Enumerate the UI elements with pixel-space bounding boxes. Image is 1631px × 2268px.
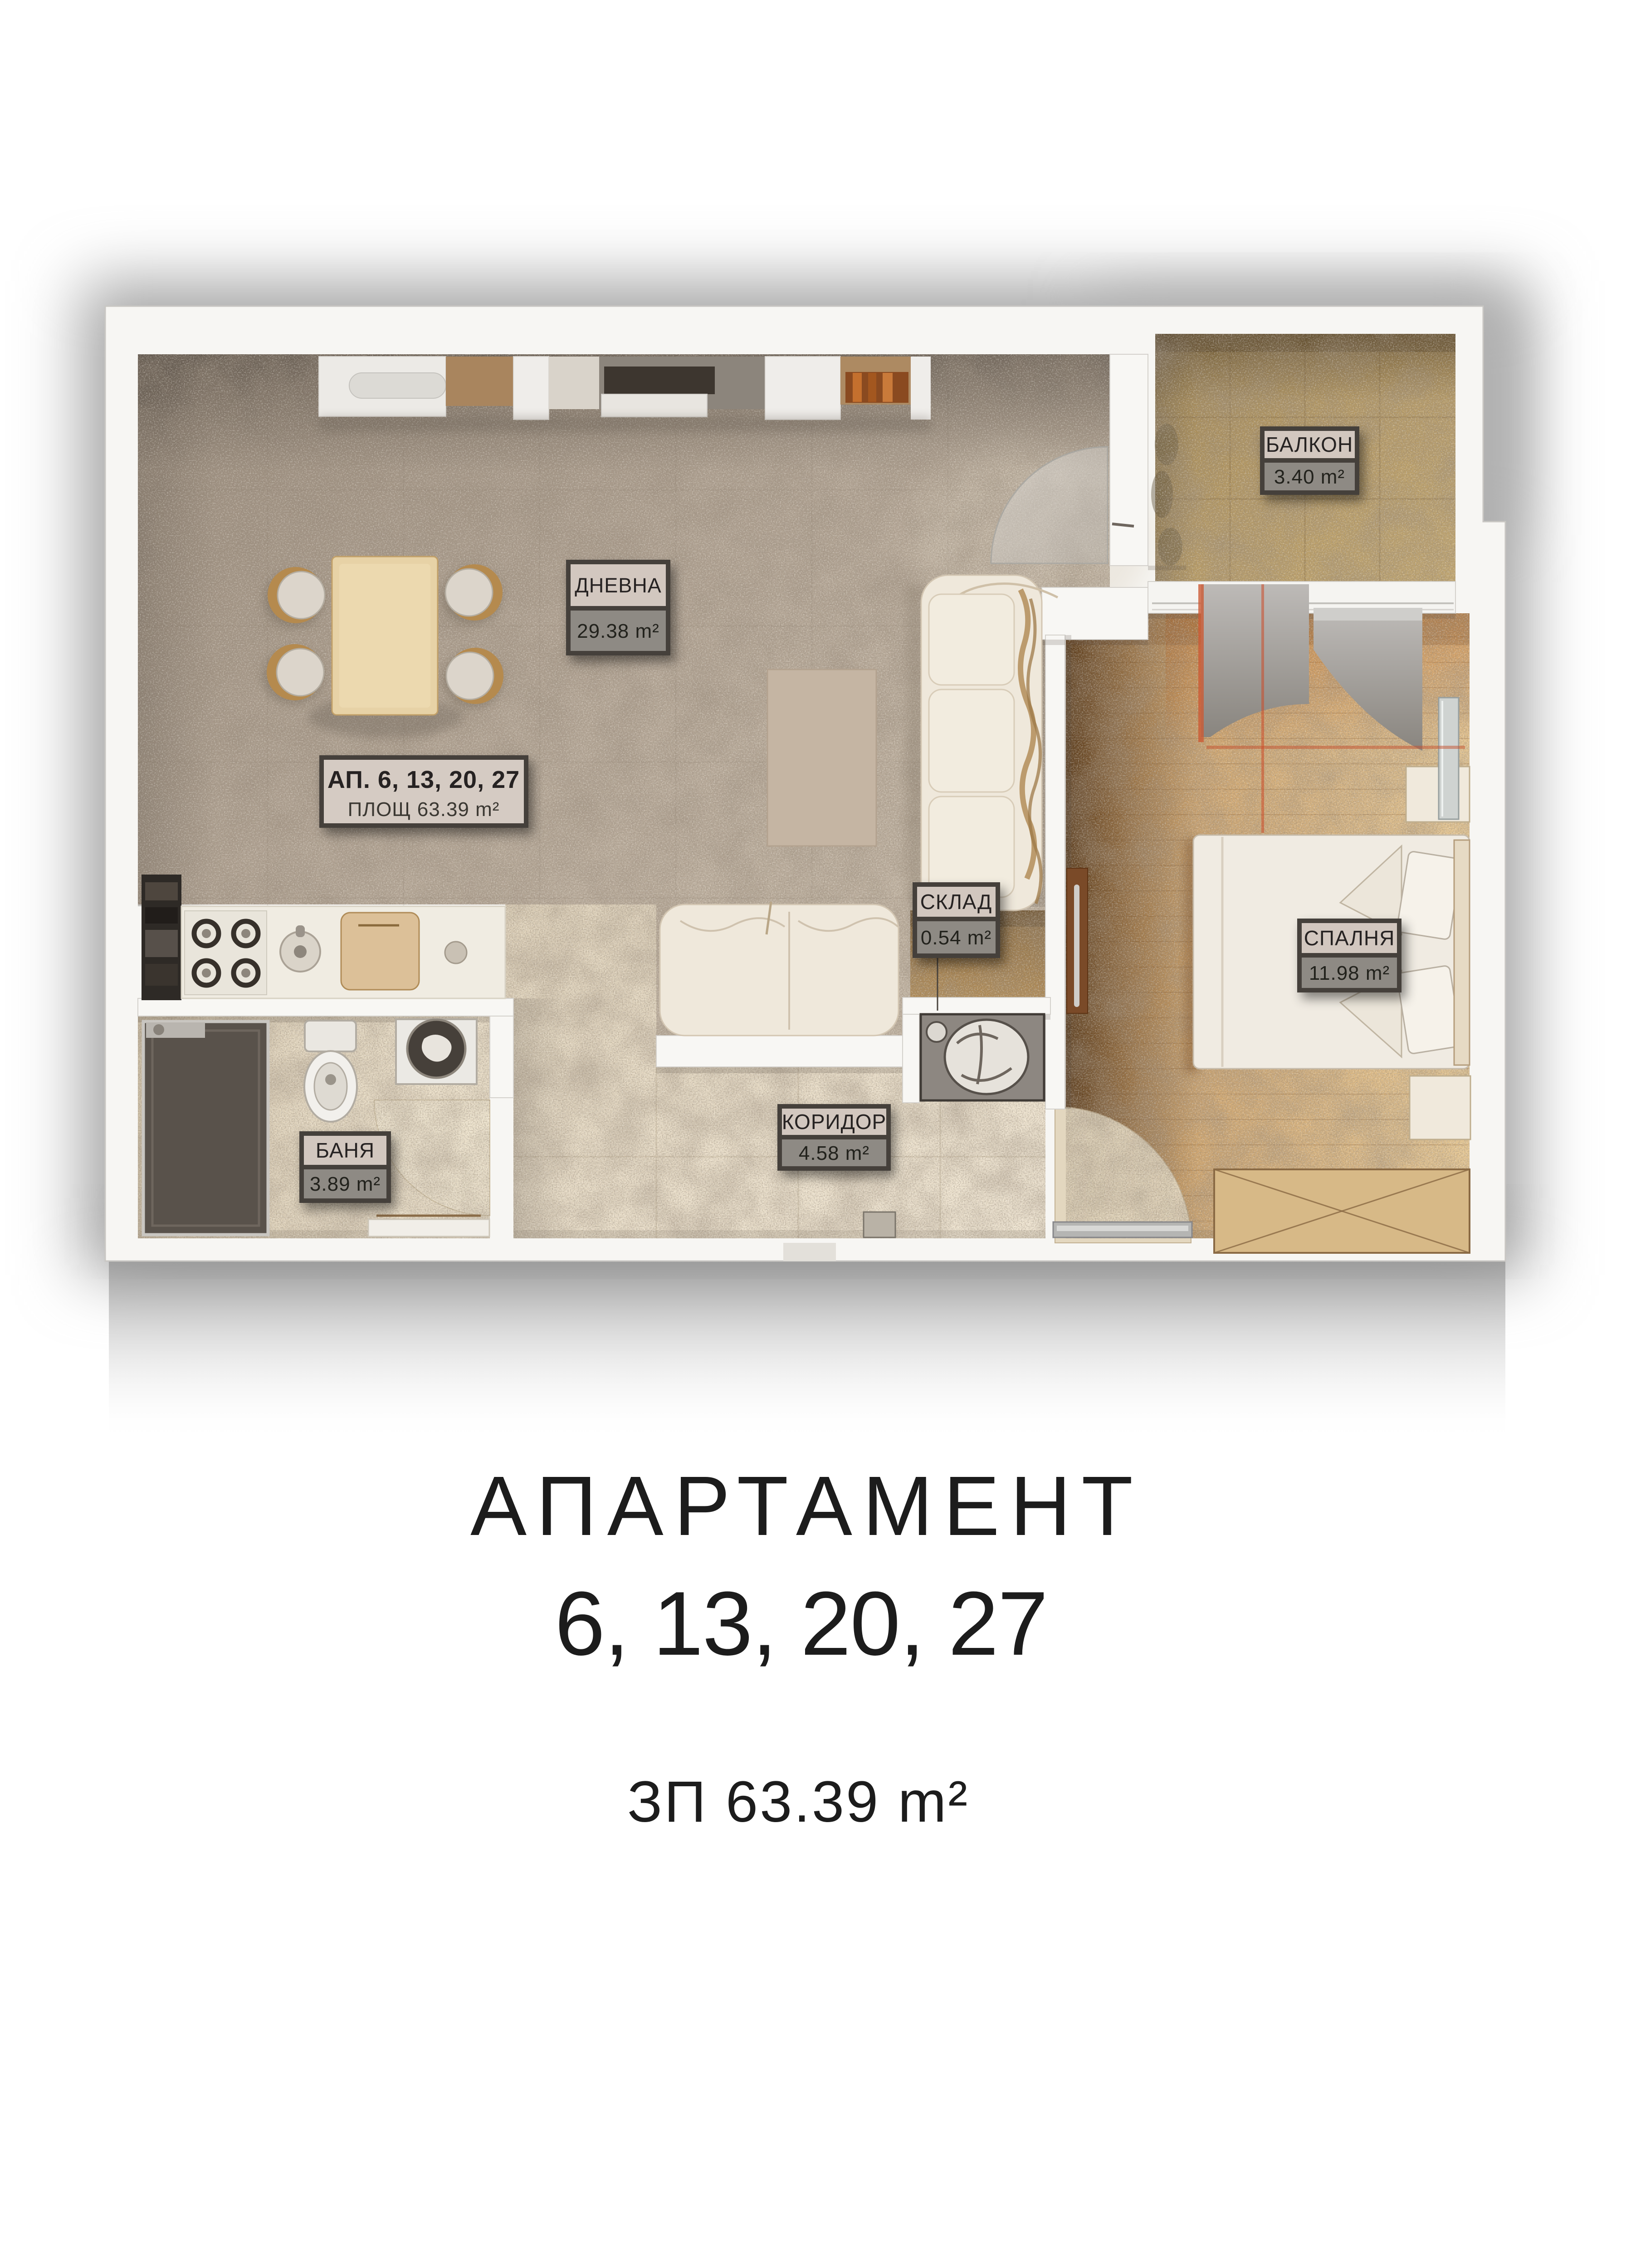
svg-text:ЗП 63.39 m²: ЗП 63.39 m² [627,1769,969,1834]
svg-text:4.58 m²: 4.58 m² [799,1142,869,1164]
svg-text:ДНЕВНА: ДНЕВНА [575,574,662,597]
svg-text:6, 13, 20, 27: 6, 13, 20, 27 [555,1573,1047,1674]
svg-text:СКЛАД: СКЛАД [920,890,992,914]
svg-text:0.54 m²: 0.54 m² [921,927,991,949]
svg-text:11.98 m²: 11.98 m² [1309,962,1390,984]
svg-text:КОРИДОР: КОРИДОР [782,1110,886,1134]
svg-text:29.38 m²: 29.38 m² [577,620,659,642]
svg-text:СПАЛНЯ: СПАЛНЯ [1304,926,1395,950]
svg-text:3.89 m²: 3.89 m² [310,1173,381,1195]
svg-text:АПАРТАМЕНТ: АПАРТАМЕНТ [470,1459,1143,1553]
svg-text:ПЛОЩ 63.39 m²: ПЛОЩ 63.39 m² [348,798,500,821]
svg-text:БАНЯ: БАНЯ [316,1139,375,1162]
svg-text:АП. 6, 13, 20, 27: АП. 6, 13, 20, 27 [327,766,520,793]
svg-text:3.40 m²: 3.40 m² [1274,466,1345,488]
svg-text:БАЛКОН: БАЛКОН [1266,433,1353,456]
